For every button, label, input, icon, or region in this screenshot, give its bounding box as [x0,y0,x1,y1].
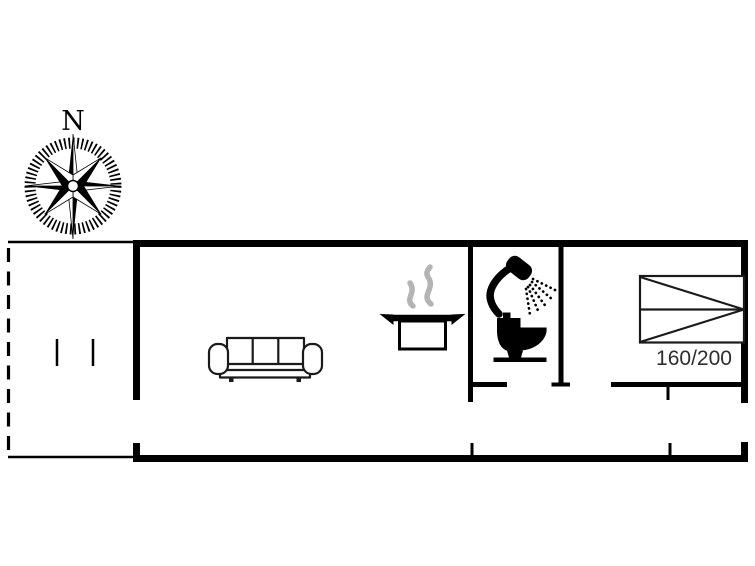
cooking-pot-icon [381,267,464,349]
steam-icon [410,267,431,306]
compass-north-label: N [61,106,85,137]
terrace-outline [8,242,133,457]
shower-spray-dots [526,279,557,315]
floor-plan-page: N [0,0,755,566]
bed-size-label: 160/200 [656,347,732,370]
floor-plan-drawing: N [0,0,755,566]
double-bed-icon [640,276,744,343]
compass-rose-icon: N [25,106,121,239]
sofa-icon [209,338,322,382]
shower-icon [490,253,557,315]
toilet-icon [494,313,547,363]
